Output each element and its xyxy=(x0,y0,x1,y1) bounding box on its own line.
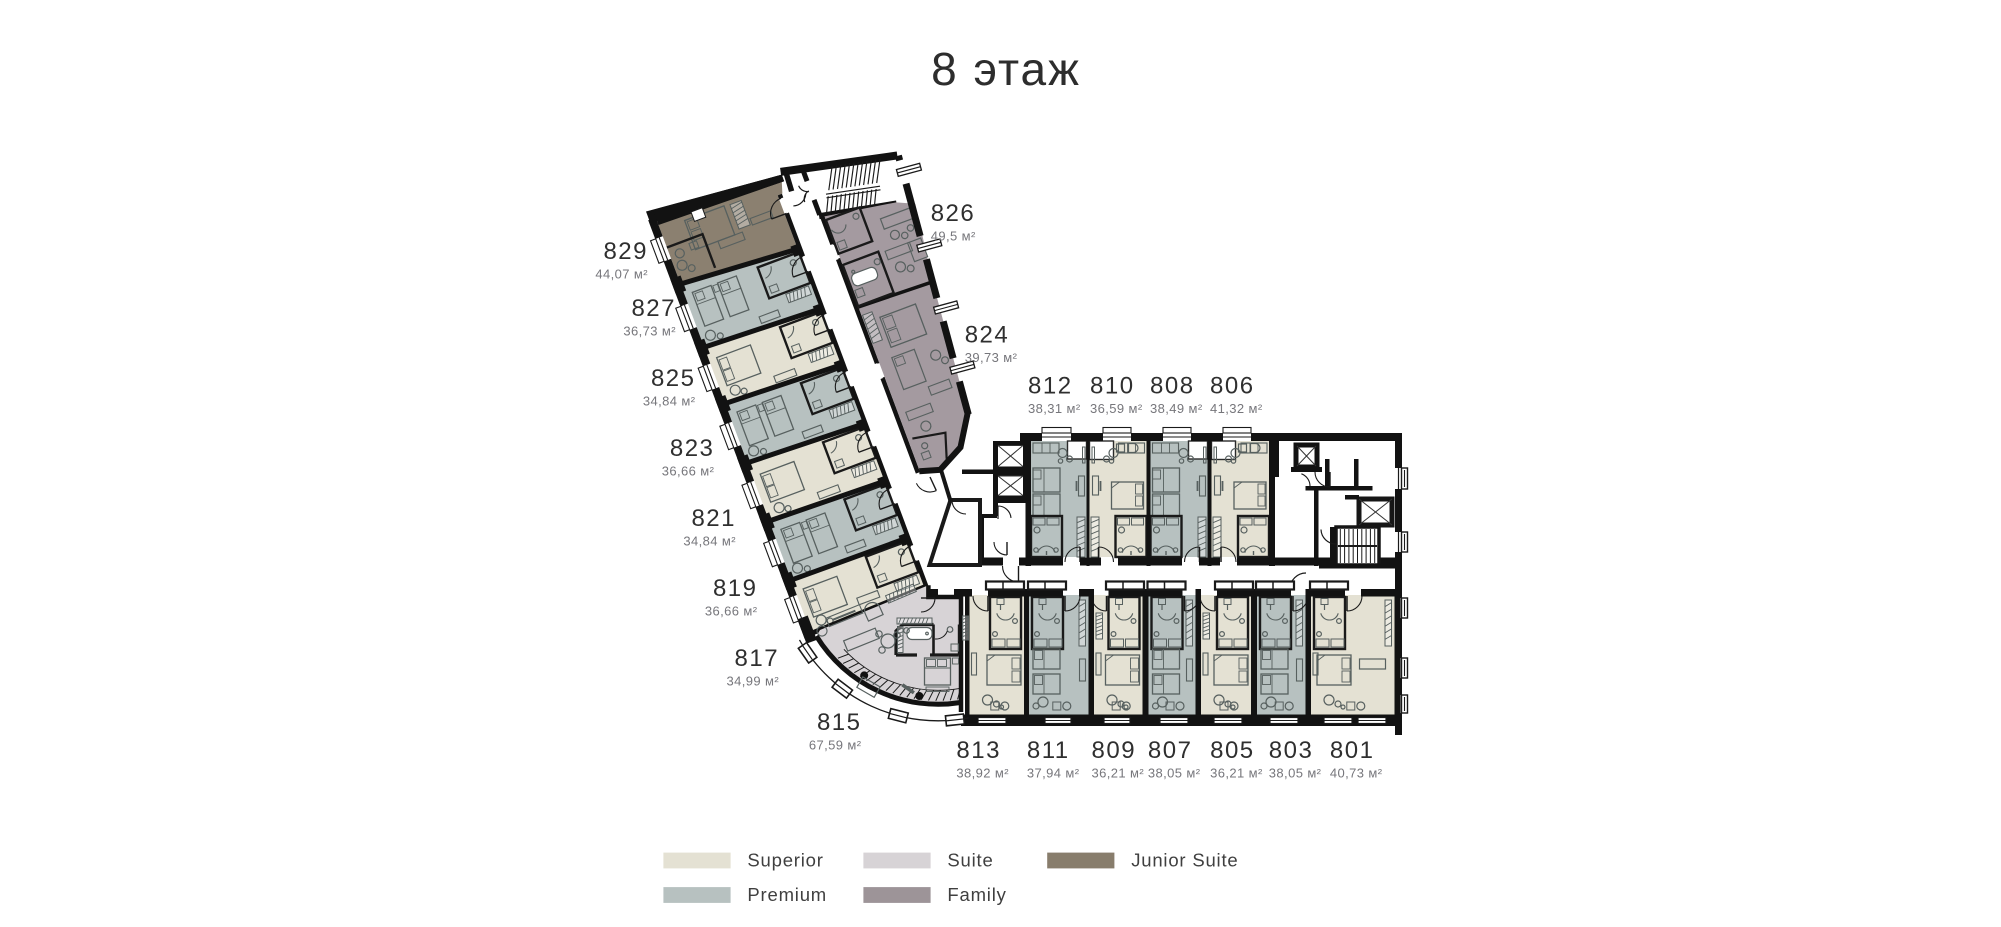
svg-text:37,94 м²: 37,94 м² xyxy=(1027,766,1080,781)
svg-text:44,07 м²: 44,07 м² xyxy=(595,267,648,282)
svg-text:801: 801 xyxy=(1330,737,1375,764)
svg-text:826: 826 xyxy=(931,200,976,227)
svg-text:38,49 м²: 38,49 м² xyxy=(1150,401,1203,416)
svg-text:38,05 м²: 38,05 м² xyxy=(1148,766,1201,781)
svg-text:36,59 м²: 36,59 м² xyxy=(1090,401,1143,416)
svg-text:810: 810 xyxy=(1090,373,1135,400)
svg-text:34,84 м²: 34,84 м² xyxy=(683,534,736,549)
svg-text:819: 819 xyxy=(713,575,758,602)
svg-text:817: 817 xyxy=(735,645,780,672)
svg-text:38,31 м²: 38,31 м² xyxy=(1028,401,1081,416)
svg-text:36,73 м²: 36,73 м² xyxy=(623,324,676,339)
svg-text:809: 809 xyxy=(1092,737,1137,764)
svg-text:829: 829 xyxy=(603,238,648,265)
svg-text:824: 824 xyxy=(965,322,1010,349)
svg-text:811: 811 xyxy=(1027,737,1070,764)
svg-text:39,73 м²: 39,73 м² xyxy=(965,350,1018,365)
svg-text:Junior Suite: Junior Suite xyxy=(1131,850,1238,871)
svg-text:808: 808 xyxy=(1150,373,1195,400)
svg-text:Premium: Premium xyxy=(747,884,827,905)
svg-text:36,21 м²: 36,21 м² xyxy=(1092,766,1145,781)
svg-text:8 этаж: 8 этаж xyxy=(931,43,1081,95)
svg-text:813: 813 xyxy=(956,737,1001,764)
svg-text:Family: Family xyxy=(947,884,1006,905)
svg-text:Superior: Superior xyxy=(747,850,823,871)
svg-text:823: 823 xyxy=(670,435,715,462)
svg-text:803: 803 xyxy=(1269,737,1314,764)
svg-text:806: 806 xyxy=(1210,373,1255,400)
svg-text:49,5 м²: 49,5 м² xyxy=(931,229,976,244)
svg-text:805: 805 xyxy=(1210,737,1255,764)
svg-text:Suite: Suite xyxy=(947,850,993,871)
svg-text:36,66 м²: 36,66 м² xyxy=(662,464,715,479)
svg-text:67,59 м²: 67,59 м² xyxy=(809,738,862,753)
svg-text:38,05 м²: 38,05 м² xyxy=(1269,766,1322,781)
svg-text:34,84 м²: 34,84 м² xyxy=(643,394,696,409)
svg-text:825: 825 xyxy=(651,365,696,392)
svg-text:821: 821 xyxy=(691,505,736,532)
svg-text:807: 807 xyxy=(1148,737,1193,764)
svg-text:40,73 м²: 40,73 м² xyxy=(1330,766,1383,781)
svg-text:36,66 м²: 36,66 м² xyxy=(705,604,758,619)
svg-text:812: 812 xyxy=(1028,373,1073,400)
svg-text:827: 827 xyxy=(631,295,676,322)
svg-text:38,92 м²: 38,92 м² xyxy=(956,766,1009,781)
svg-text:815: 815 xyxy=(817,709,862,736)
svg-text:36,21 м²: 36,21 м² xyxy=(1210,766,1263,781)
svg-text:41,32 м²: 41,32 м² xyxy=(1210,401,1263,416)
svg-text:34,99 м²: 34,99 м² xyxy=(726,674,779,689)
